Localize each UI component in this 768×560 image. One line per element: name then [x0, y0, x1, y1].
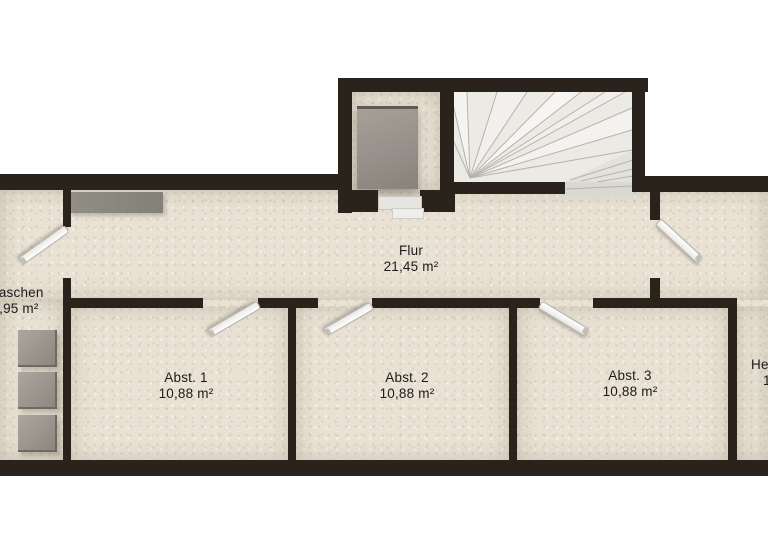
- floor-plan: Waschen 4,95 m² Flur 21,45 m² Abst. 1 10…: [0, 0, 768, 560]
- floor-main: [0, 188, 768, 462]
- room-name: Waschen: [0, 285, 115, 301]
- room-name: He: [751, 357, 768, 373]
- wall-divider-abst2-3: [509, 298, 517, 462]
- room-label-flur: Flur 21,45 m²: [311, 243, 511, 275]
- room-area: 10,88 m²: [307, 386, 507, 402]
- wall-top-left: [0, 174, 352, 190]
- room-label-abst3: Abst. 3 10,88 m²: [530, 368, 730, 400]
- wall-stair-bottom: [445, 182, 565, 194]
- bed: [357, 106, 418, 189]
- wall-bed-stair-divider: [440, 88, 454, 193]
- wall-top-right: [632, 176, 768, 192]
- room-area: 1: [763, 373, 768, 389]
- wall-flur-e: [660, 298, 737, 308]
- room-area: 10,88 m²: [86, 386, 286, 402]
- wall-protrusion-top: [338, 78, 648, 92]
- room-area: 4,95 m²: [0, 301, 115, 317]
- washing-machine-2: [18, 372, 57, 409]
- room-label-abst2: Abst. 2 10,88 m²: [307, 370, 507, 402]
- threshold-step-2: [392, 208, 424, 219]
- room-label-abst1: Abst. 1 10,88 m²: [86, 370, 286, 402]
- room-name: Abst. 2: [307, 370, 507, 386]
- wall-stub-right-door: [650, 192, 660, 220]
- room-area: 21,45 m²: [311, 259, 511, 275]
- room-label-right-clipped: He: [751, 357, 768, 373]
- room-label-waschen: Waschen 4,95 m²: [0, 285, 115, 317]
- wall-stub-waschen-top: [63, 190, 71, 227]
- wall-stair-right: [632, 78, 645, 182]
- wall-divider-abst1-2: [288, 298, 296, 462]
- room-area-right-clipped: 1: [763, 373, 768, 389]
- room-area: 10,88 m²: [530, 384, 730, 400]
- washing-machine-1: [18, 330, 57, 367]
- room-name: Abst. 3: [530, 368, 730, 384]
- wall-flur-d: [593, 298, 650, 308]
- room-name: Flur: [311, 243, 511, 259]
- wall-bed-bottom-left: [338, 190, 378, 212]
- washing-machine-3: [18, 415, 57, 452]
- room-name: Abst. 1: [86, 370, 286, 386]
- wall-bottom: [0, 460, 768, 476]
- wall-stub-corridor-t: [650, 278, 660, 308]
- counter: [70, 192, 163, 213]
